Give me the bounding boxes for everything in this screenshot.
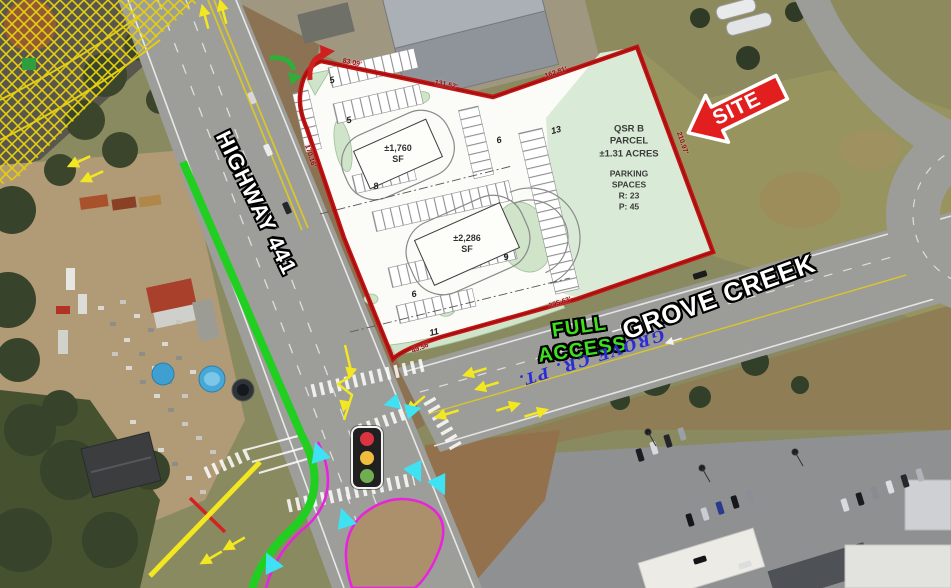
yellow-light bbox=[360, 451, 374, 465]
parcel-acreage: ±1.31 ACRES bbox=[579, 148, 679, 160]
parcel-name-line1: QSR B bbox=[579, 123, 679, 135]
parking-title-line1: PARKING bbox=[579, 168, 679, 179]
building-2-area: ±2,286 bbox=[453, 233, 480, 244]
aerial-site-map: ±1,760 SF ±2,286 SF QSR B PARCEL ±1.31 A… bbox=[0, 0, 951, 588]
entry-arrow-icon bbox=[270, 58, 302, 85]
parking-count-p: P: 45 bbox=[579, 202, 679, 213]
red-light bbox=[360, 432, 374, 446]
traffic-light-icon bbox=[351, 426, 383, 489]
parking-title-line2: SPACES bbox=[579, 179, 679, 190]
parcel-name-line2: PARCEL bbox=[579, 136, 679, 148]
building-1-unit: SF bbox=[392, 154, 404, 165]
building-2-unit: SF bbox=[461, 244, 473, 255]
green-light bbox=[360, 469, 374, 483]
parking-count-r: R: 23 bbox=[579, 191, 679, 202]
building-1-area: ±1,760 bbox=[384, 143, 411, 154]
parcel-info-block: QSR B PARCEL ±1.31 ACRES PARKING SPACES … bbox=[579, 123, 679, 212]
site-plan bbox=[0, 0, 951, 588]
